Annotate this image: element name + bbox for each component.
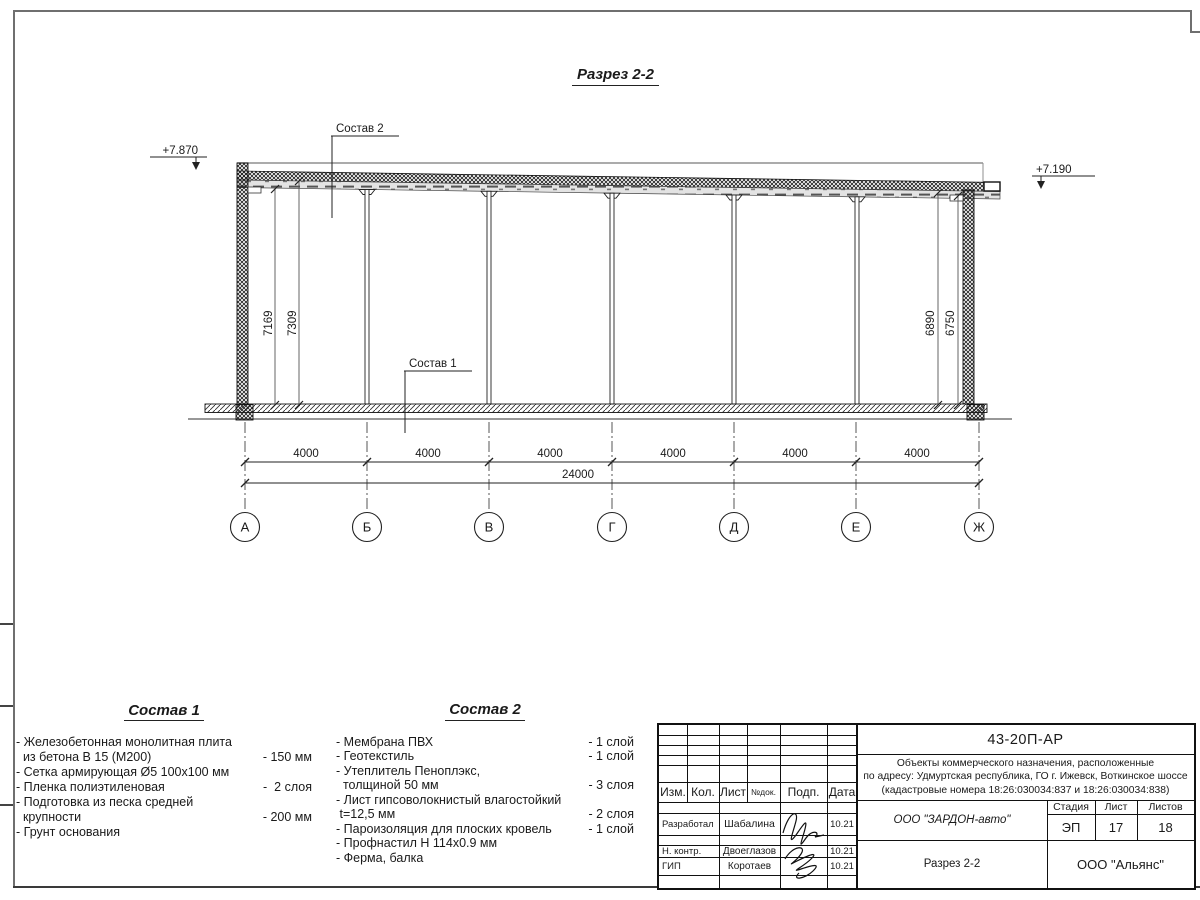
item-name: - Пароизоляция для плоских кровель: [336, 822, 552, 837]
tb-header-ndok: №док.: [747, 782, 780, 802]
tb-stage-value: ЭП: [1047, 814, 1095, 840]
axis-label-g: Г: [608, 520, 615, 535]
tb-drawing-name: Разрез 2-2: [857, 840, 1047, 888]
dim-bay-1: 4000: [293, 448, 319, 460]
list-item: - Пленка полиэтиленовая - 2 слоя: [16, 780, 312, 795]
list-item: - Ферма, балка: [336, 851, 634, 866]
elevation-mark-left: +7.870: [150, 145, 207, 170]
list-item: - Утеплитель Пеноплэкс, толщиной 50 мм -…: [336, 764, 634, 793]
axis-label-v: В: [485, 520, 494, 535]
columns: [359, 190, 865, 405]
vertical-dim-ticks-left: [271, 177, 303, 409]
tb-header-podp: Подп.: [780, 782, 827, 802]
sostav2-title: Состав 2: [336, 703, 634, 721]
list-item: - Пароизоляция для плоских кровель - 1 с…: [336, 822, 634, 837]
tb-date: 10.21: [827, 857, 857, 875]
tb-project-description: Объекты коммерческого назначения, распол…: [857, 754, 1194, 800]
axis-label-b: Б: [363, 520, 372, 535]
tb-header-list: Лист: [719, 782, 747, 802]
callout-sostav1-label: Состав 1: [409, 358, 457, 370]
list-item: - Профнастил Н 114х0.9 мм: [336, 836, 634, 851]
title-block: Изм. Кол. Лист №док. Подп. Дата Разработ…: [657, 723, 1196, 890]
item-name: - Мембрана ПВХ: [336, 735, 433, 750]
tb-role: ГИП: [659, 857, 722, 875]
item-name: - Подготовка из песка средней крупности: [16, 795, 193, 825]
item-value: - 1 слой: [588, 735, 634, 750]
tb-contractor: ООО "Альянс": [1047, 840, 1194, 888]
list-item: - Лист гипсоволокнистый влагостойкий t=1…: [336, 793, 634, 822]
tb-sheet-value: 17: [1095, 814, 1137, 840]
sostav1-title: Состав 1: [16, 703, 312, 721]
tb-name: Коротаев: [719, 857, 780, 875]
tb-sheets-value: 18: [1137, 814, 1194, 840]
fold-mark: [0, 804, 13, 806]
callout-sostav1: Состав 1: [404, 358, 472, 433]
dim-bay-6: 4000: [904, 448, 930, 460]
tb-header-izm: Изм.: [659, 782, 687, 802]
axis-label-a: А: [241, 520, 250, 535]
section-drawing: Состав 2 Состав 1 +7.870 +7.190 7169 730…: [0, 0, 1200, 620]
wall-right: [963, 190, 974, 404]
list-item: - Грунт основания: [16, 825, 312, 840]
wall-left: [237, 163, 248, 404]
elevation-mark-right: +7.190: [1032, 164, 1095, 189]
vertical-dims-right: [938, 193, 958, 405]
item-name: - Пленка полиэтиленовая: [16, 780, 165, 795]
item-name: - Железобетонная монолитная плита из бет…: [16, 735, 232, 765]
tb-header-kol: Кол.: [687, 782, 719, 802]
tb-role: Разработал: [659, 813, 722, 835]
elevation-left-value: +7.870: [163, 145, 199, 157]
corbel-left: [248, 187, 261, 193]
item-name: - Ферма, балка: [336, 851, 423, 866]
item-value: - 2 слоя: [589, 807, 634, 822]
item-name: - Геотекстиль: [336, 749, 414, 764]
tb-name: Шабалина: [719, 813, 780, 835]
tb-sheets-label: Листов: [1137, 800, 1194, 814]
item-name: - Профнастил Н 114х0.9 мм: [336, 836, 497, 851]
tb-doc-code: 43-20П-АР: [857, 725, 1194, 754]
axis-label-e: Е: [852, 520, 861, 535]
material-list-sostav1: Состав 1 - Железобетонная монолитная пли…: [16, 703, 312, 840]
item-value: - 2 слоя: [263, 780, 312, 795]
tb-role: Н. контр.: [659, 845, 722, 857]
dim-bay-5: 4000: [782, 448, 808, 460]
list-item: - Железобетонная монолитная плита из бет…: [16, 735, 312, 765]
dim-6750: 6750: [945, 310, 957, 336]
dim-7169: 7169: [263, 310, 275, 336]
dim-bay-3: 4000: [537, 448, 563, 460]
callout-sostav2-label: Состав 2: [336, 123, 384, 135]
tb-header-data: Дата: [827, 782, 857, 802]
dim-total-24000: 24000: [562, 469, 594, 481]
signature-scribbles: [777, 807, 829, 885]
material-list-sostav2: Состав 2 - Мембрана ПВХ - 1 слой - Геоте…: [336, 703, 634, 865]
item-value: - 150 мм: [263, 750, 312, 765]
item-value: - 1 слой: [588, 822, 634, 837]
axis-bubbles: А Б В Г Д Е Ж: [231, 513, 994, 542]
item-name: - Утеплитель Пеноплэкс, толщиной 50 мм: [336, 764, 480, 793]
dim-7309: 7309: [287, 310, 299, 336]
tb-date: 10.21: [827, 845, 857, 857]
axis-label-zh: Ж: [973, 520, 985, 535]
list-item: - Подготовка из песка средней крупности …: [16, 795, 312, 825]
dim-bay-2: 4000: [415, 448, 441, 460]
list-item: - Геотекстиль - 1 слой: [336, 749, 634, 764]
grid-axis-lines: [245, 422, 979, 512]
dim-6890: 6890: [925, 310, 937, 336]
tb-name: Двоеглазов: [719, 845, 780, 857]
tb-company: ООО "ЗАРДОН-авто": [857, 800, 1047, 840]
foundation-right: [967, 405, 984, 421]
item-value: - 200 мм: [263, 810, 312, 825]
item-value: - 3 слоя: [589, 778, 634, 793]
item-value: - 1 слой: [588, 749, 634, 764]
tb-sheet-label: Лист: [1095, 800, 1137, 814]
fold-mark: [0, 623, 13, 625]
list-item: - Мембрана ПВХ - 1 слой: [336, 735, 634, 750]
item-name: - Сетка армирующая Ø5 100х100 мм: [16, 765, 229, 780]
axis-label-d: Д: [730, 520, 739, 535]
vertical-dims-left: [275, 181, 299, 405]
foundation-left: [236, 405, 253, 421]
fold-mark: [0, 705, 13, 707]
floor-slab: [188, 404, 1012, 420]
roof-end-cap: [984, 182, 1000, 191]
tb-date: 10.21: [827, 813, 857, 835]
list-item: - Сетка армирующая Ø5 100х100 мм: [16, 765, 312, 780]
tb-stage-label: Стадия: [1047, 800, 1095, 814]
item-name: - Лист гипсоволокнистый влагостойкий t=1…: [336, 793, 561, 822]
elevation-right-value: +7.190: [1036, 164, 1072, 176]
dim-bay-4: 4000: [660, 448, 686, 460]
item-name: - Грунт основания: [16, 825, 120, 840]
